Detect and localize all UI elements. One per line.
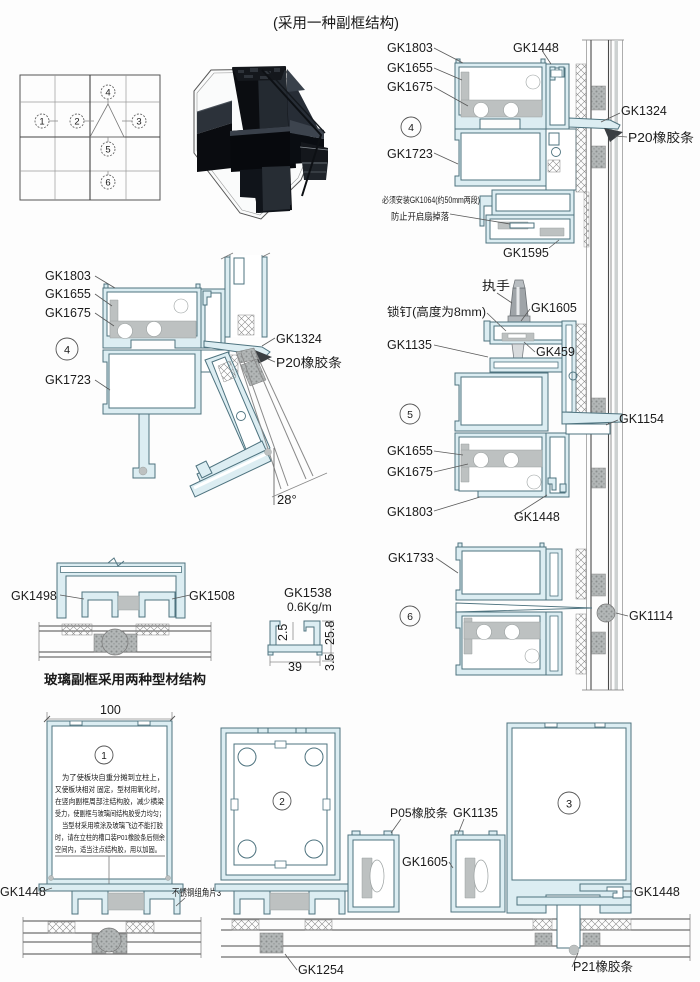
svg-text:P05橡胶条: P05橡胶条 <box>390 806 449 820</box>
svg-text:为了使板块自重分摊到立柱上，: 为了使板块自重分摊到立柱上， <box>62 772 164 782</box>
svg-text:(采用一种副框结构): (采用一种副框结构) <box>273 15 399 32</box>
svg-text:1: 1 <box>101 751 107 762</box>
svg-text:GK1675: GK1675 <box>45 306 91 320</box>
svg-text:GK1538: GK1538 <box>284 585 332 600</box>
svg-text:GK1254: GK1254 <box>298 963 344 977</box>
svg-text:空间内，适当注点结构胶，用以加固。: 空间内，适当注点结构胶，用以加固。 <box>55 844 161 854</box>
svg-text:GK1655: GK1655 <box>45 287 91 301</box>
svg-text:GK1135: GK1135 <box>453 806 498 820</box>
svg-text:GK1803: GK1803 <box>45 269 91 283</box>
svg-text:GK1498: GK1498 <box>11 589 57 603</box>
svg-text:锁钉(高度为8mm): 锁钉(高度为8mm) <box>387 304 486 319</box>
svg-text:必须安装GK1064(约50mm两段): 必须安装GK1064(约50mm两段) <box>382 194 480 205</box>
svg-text:GK1135: GK1135 <box>387 338 432 352</box>
svg-text:P21橡胶条: P21橡胶条 <box>573 959 633 974</box>
svg-text:0.6Kg/m: 0.6Kg/m <box>287 600 332 614</box>
svg-text:GK1655: GK1655 <box>387 444 433 458</box>
svg-text:时，请在立柱的槽口装P01橡胶条后侧余: 时，请在立柱的槽口装P01橡胶条后侧余 <box>55 832 165 842</box>
svg-text:2: 2 <box>279 797 285 808</box>
svg-text:GK1154: GK1154 <box>619 412 664 426</box>
svg-text:GK1508: GK1508 <box>189 589 235 603</box>
svg-text:GK1675: GK1675 <box>387 80 433 94</box>
svg-text:100: 100 <box>100 703 121 717</box>
svg-text:GK1605: GK1605 <box>531 301 577 315</box>
svg-text:P20橡胶条: P20橡胶条 <box>276 355 343 370</box>
svg-text:GK1324: GK1324 <box>276 332 322 346</box>
svg-text:GK1803: GK1803 <box>387 505 433 519</box>
svg-text:GK459: GK459 <box>536 345 575 359</box>
svg-text:GK1448: GK1448 <box>0 885 46 899</box>
svg-text:6: 6 <box>105 178 110 189</box>
svg-text:4: 4 <box>408 122 414 134</box>
svg-text:5: 5 <box>407 409 413 421</box>
svg-text:GK1803: GK1803 <box>387 41 433 55</box>
svg-text:2.5: 2.5 <box>276 624 290 641</box>
svg-text:3: 3 <box>136 117 141 128</box>
svg-text:GK1605: GK1605 <box>402 855 448 869</box>
svg-text:玻璃副框采用两种型材结构: 玻璃副框采用两种型材结构 <box>44 672 206 687</box>
svg-text:GK1733: GK1733 <box>388 551 434 565</box>
svg-text:GK1675: GK1675 <box>387 465 433 479</box>
svg-text:3.5: 3.5 <box>323 654 337 671</box>
svg-text:3: 3 <box>566 799 572 811</box>
svg-text:28°: 28° <box>277 492 297 507</box>
svg-text:GK1324: GK1324 <box>621 104 667 118</box>
svg-text:25.8: 25.8 <box>323 621 337 645</box>
svg-text:4: 4 <box>64 345 70 357</box>
svg-text:6: 6 <box>407 611 413 623</box>
svg-text:GK1448: GK1448 <box>634 885 680 899</box>
svg-text:P20橡胶条: P20橡胶条 <box>628 130 695 145</box>
svg-text:执手: 执手 <box>482 279 510 293</box>
svg-text:2: 2 <box>74 117 79 128</box>
svg-text:受力，使副框与玻璃间结构胶受力均匀；: 受力，使副框与玻璃间结构胶受力均匀； <box>55 808 165 818</box>
svg-text:5: 5 <box>105 145 110 156</box>
svg-text:GK1595: GK1595 <box>503 246 549 260</box>
svg-text:GK1448: GK1448 <box>514 510 560 524</box>
svg-text:1: 1 <box>39 117 44 128</box>
svg-text:当型材采用喷涂及玻璃飞边不能打胶: 当型材采用喷涂及玻璃飞边不能打胶 <box>62 820 163 830</box>
svg-text:又使板块相对 固定，型材用氧化时，: 又使板块相对 固定，型材用氧化时， <box>55 784 164 794</box>
svg-text:GK1114: GK1114 <box>629 609 673 623</box>
svg-text:GK1448: GK1448 <box>513 41 559 55</box>
svg-text:GK1655: GK1655 <box>387 61 433 75</box>
svg-text:在竖向副框周部注结构胶，减少横梁: 在竖向副框周部注结构胶，减少横梁 <box>55 796 164 806</box>
svg-text:GK1723: GK1723 <box>387 147 433 161</box>
svg-text:GK1723: GK1723 <box>45 373 91 387</box>
svg-text:39: 39 <box>288 660 302 674</box>
svg-text:防止开启扇掉落: 防止开启扇掉落 <box>391 211 449 223</box>
svg-text:4: 4 <box>105 88 110 99</box>
svg-text:不锈钢组角片3: 不锈钢组角片3 <box>172 886 221 899</box>
